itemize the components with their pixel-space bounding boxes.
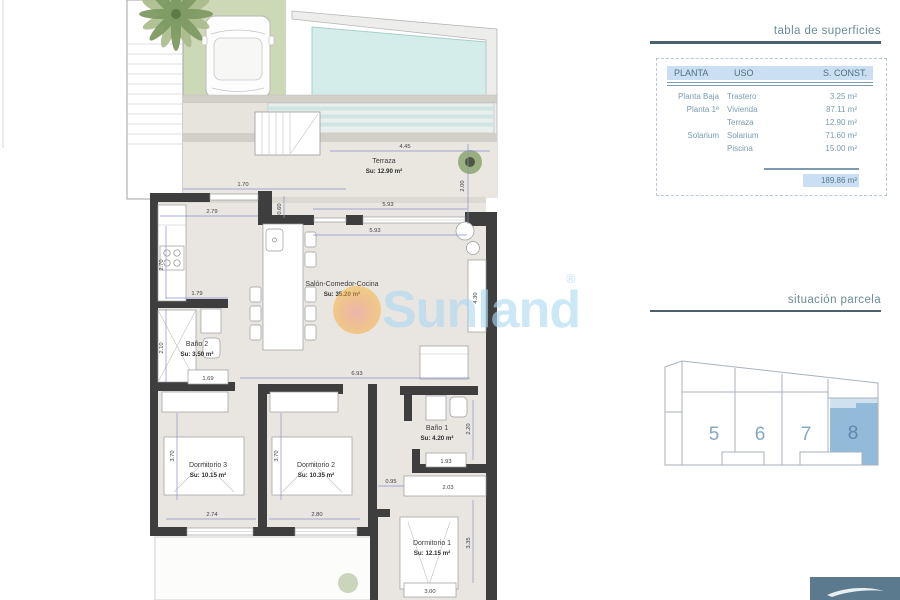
svg-text:Su: 12.15 m²: Su: 12.15 m² [414,550,450,557]
svg-text:2.70: 2.70 [159,259,165,270]
title-rule [650,41,881,44]
table-row: Piscina 15.00 m² [667,142,857,155]
header-sconst: S. CONST. [823,68,867,78]
terrace-wall-band [183,95,497,103]
svg-text:Su: 10.35 m²: Su: 10.35 m² [298,472,334,479]
room-label-bano2: Baño 2 [186,341,208,348]
surface-table-header: PLANTA USO S. CONST. [667,66,873,80]
plot-number-7: 7 [801,424,812,445]
room-label-dorm1: Dormitorio 1 [413,540,451,547]
washbasin [201,309,221,333]
svg-text:5.93: 5.93 [369,228,380,234]
svg-text:2.20: 2.20 [466,423,472,434]
surface-table-rows: Planta Baja Trastero 3.25 m² Planta 1ª V… [667,90,857,155]
table-row: Planta 1ª Vivienda 87.11 m² [667,103,857,116]
svg-text:0.95: 0.95 [385,479,396,485]
surface-table: PLANTA USO S. CONST. Planta Baja Traster… [656,58,887,196]
table-row: Planta Baja Trastero 3.25 m² [667,90,857,103]
svg-text:Su: 3.50 m²: Su: 3.50 m² [180,351,213,358]
svg-text:3.70: 3.70 [274,450,280,461]
site-title-rule [650,310,881,312]
sun-icon [333,286,381,334]
wardrobe [270,392,338,412]
header-uso: USO [734,68,754,78]
total-rule [764,168,859,170]
svg-text:6.93: 6.93 [351,371,362,377]
table-row: Terraza 12.90 m² [667,116,857,129]
room-label-dorm2: Dormitorio 2 [297,462,335,469]
site-plan [665,361,878,465]
toilet [450,397,467,417]
svg-text:1.69: 1.69 [202,376,213,382]
header-planta: PLANTA [674,68,708,78]
svg-text:2.00: 2.00 [460,180,466,191]
svg-text:2.79: 2.79 [206,209,217,215]
svg-text:3.00: 3.00 [424,589,435,595]
registered-mark: ® [566,271,576,286]
terrace-wall-band2 [183,133,497,142]
plot-number-5: 5 [709,424,720,445]
rear-garden [155,537,377,600]
svg-text:2.74: 2.74 [206,512,218,518]
svg-text:2.10: 2.10 [159,342,165,353]
svg-text:4.45: 4.45 [399,144,410,150]
wardrobe [162,392,228,412]
room-label-bano1: Baño 1 [426,425,448,432]
site-plan-title: situación parcela [621,294,881,306]
terrace-plant-center [465,157,475,167]
plot-number-6: 6 [755,424,766,445]
bedroom1-fixtures [400,517,458,597]
svg-text:1.70: 1.70 [237,182,248,188]
room-label-salon: Salón-Comedor-Cocina [305,281,378,288]
washbasin [426,396,446,420]
svg-text:1.79: 1.79 [191,291,202,297]
svg-text:2.03: 2.03 [442,485,453,491]
header-rule [667,82,873,86]
svg-text:5.93: 5.93 [382,202,393,208]
svg-text:Su: 4.20 m²: Su: 4.20 m² [420,435,453,442]
sofa [420,346,468,379]
watermark-text: Sunland [382,281,580,339]
table-row: Solarium Solarium 71.60 m² [667,129,857,142]
total-surface: 189.86 m² [803,174,859,187]
room-label-terraza: Terraza [372,158,395,165]
surface-table-title: tabla de superficies [621,25,881,37]
room-label-dorm3: Dormitorio 3 [189,462,227,469]
svg-text:0.60: 0.60 [277,203,283,214]
terrace-stair [255,112,320,155]
sink [266,229,283,251]
agency-logo [810,577,900,600]
svg-text:1.93: 1.93 [440,459,451,465]
floorplan-page: 4.45 2.00 1.70 0.60 5.93 5.93 2.79 2.70 … [0,0,900,600]
svg-text:Su: 10.15 m²: Su: 10.15 m² [190,472,226,479]
svg-text:3.35: 3.35 [466,537,472,548]
svg-text:2.80: 2.80 [311,512,322,518]
svg-text:3.70: 3.70 [170,450,176,461]
car [202,16,274,98]
svg-text:Su: 12.90 m²: Su: 12.90 m² [366,168,402,175]
plot-number-8: 8 [848,423,859,444]
